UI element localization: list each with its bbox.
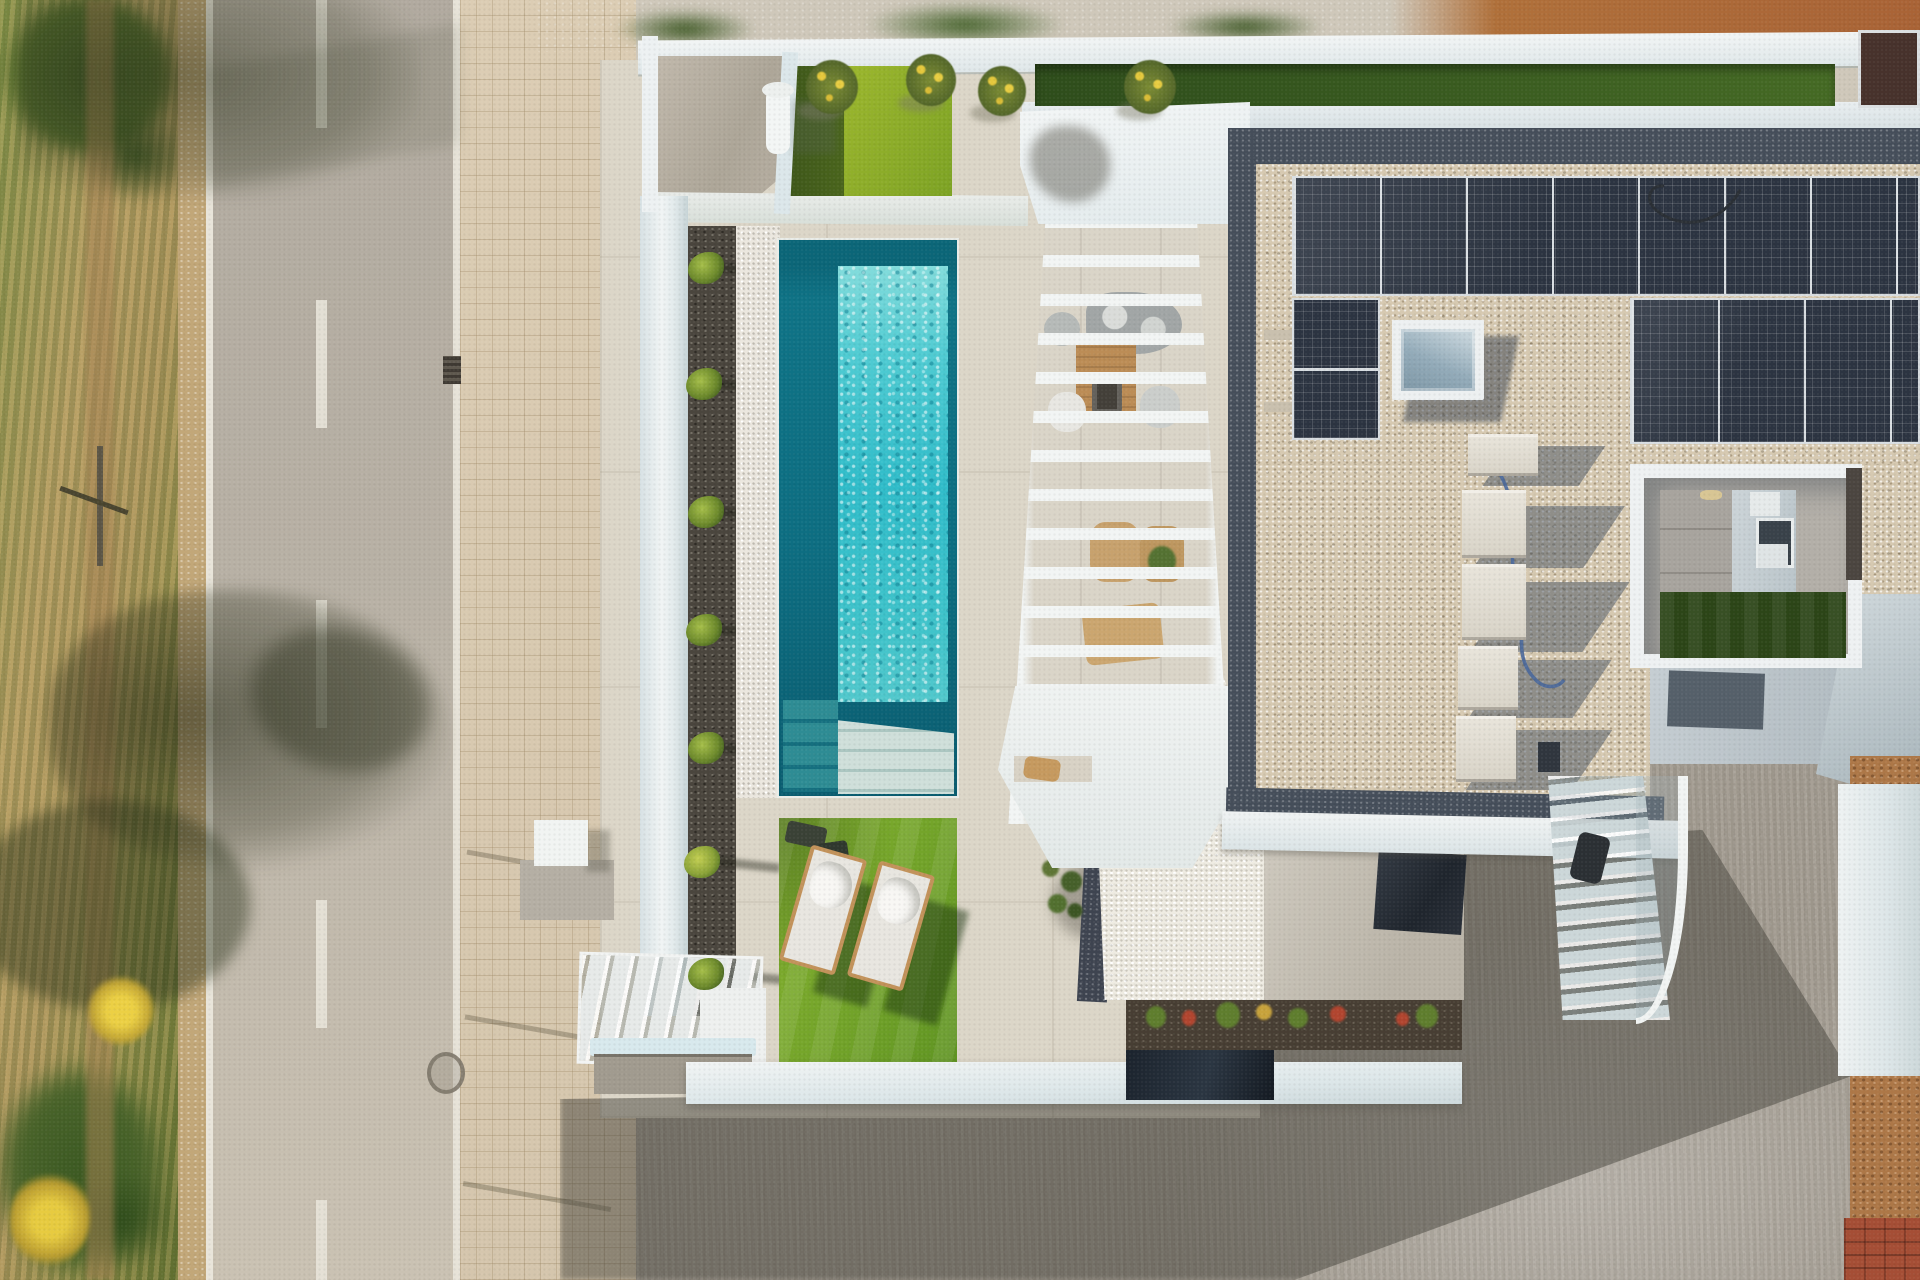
roof-cables [1228,128,1920,828]
planter-plant-green-3 [1288,1008,1308,1028]
ac-unit-5 [1456,716,1516,782]
south-facade-wall-band [686,1062,1462,1104]
swimming-pool [779,240,957,796]
dark-glass-reflection [1373,849,1466,935]
neighbor-brick-stack [1844,1218,1920,1280]
aerial-photo-scene [0,0,1920,1280]
white-storage-cube [534,820,588,866]
planter-plant-green-1 [1146,1006,1166,1028]
pool-water-sunlit [838,266,948,702]
planter-plant-yellow [1256,1004,1272,1020]
planter-plant-red-2 [1330,1006,1346,1022]
garden-walkway-band [648,192,1028,226]
yellow-flower-pot-3 [978,66,1026,116]
planter-plant-green-2 [1216,1002,1240,1028]
towel-1 [805,857,858,913]
outdoor-shower-head [762,82,794,98]
ac-unit-4 [1458,646,1518,710]
planter-plant-green-4 [1416,1004,1438,1028]
yellow-flower-pot-1 [806,60,858,114]
pool-entry-steps [838,712,954,794]
planter-plant-red-3 [1396,1012,1409,1026]
planter-plant-red-1 [1182,1010,1196,1026]
neighbor-dark-wall-panel [1858,30,1920,108]
west-boundary-wall [640,196,688,1016]
ac-unit-3 [1462,564,1526,640]
manhole-cover [427,1052,465,1094]
cube-shadow [586,830,610,872]
entry-wall-left [642,36,658,212]
small-dark-roof-unit [1538,742,1560,772]
courtyard-white-box [1750,492,1780,516]
ac-unit-1 [1468,434,1538,476]
storm-drain-grate [443,356,461,384]
pool-steps-deep [783,700,838,792]
yellow-flower-pot-4 [1124,60,1176,114]
ac-unit-2 [1462,490,1526,558]
courtyard-artificial-grass [1660,592,1846,658]
courtyard-window-sill [1758,544,1788,568]
yellow-flower-pot-2 [906,54,956,106]
towel-2 [873,873,926,929]
tree-shadow-north [20,0,420,200]
white-pebble-strip [736,226,780,798]
courtyard-wall-light [1700,490,1722,500]
dark-water-basin [1126,1050,1274,1100]
courtyard-shaded-wall-edge [1846,468,1862,580]
